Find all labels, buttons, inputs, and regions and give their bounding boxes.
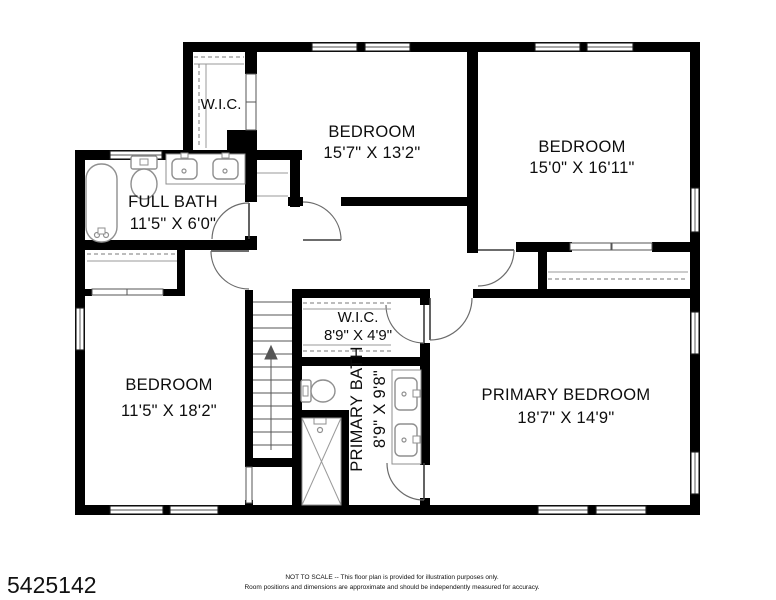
shower (302, 418, 341, 505)
room-label-bedroom-top: BEDROOM (328, 123, 415, 141)
staircase (253, 302, 292, 450)
room-label-full-bath: FULL BATH (128, 193, 218, 211)
floor-plan-canvas: W.I.C. BEDROOM 15'7" X 13'2" BEDROOM 15'… (0, 0, 776, 600)
floor-plan-page: W.I.C. BEDROOM 15'7" X 13'2" BEDROOM 15'… (0, 0, 776, 600)
bifold-door-panel (570, 243, 611, 250)
sliding-door-panel (246, 74, 256, 102)
disclaimer-line-1: NOT TO SCALE -- This floor plan is provi… (285, 574, 498, 581)
room-dims-primary-bath: 8'9" X 9'8" (371, 370, 389, 448)
bedroom-left-door (211, 251, 249, 289)
room-label-primary-bath: PRIMARY BATH (348, 346, 366, 472)
primary-bath-door (387, 463, 424, 500)
room-label-bedroom-right: BEDROOM (538, 138, 625, 156)
room-dims-bedroom-right: 15'0" X 16'11" (529, 159, 634, 177)
bedroom-right-door (478, 250, 514, 286)
room-label-primary-bedroom: PRIMARY BEDROOM (482, 386, 651, 404)
room-label-wic-upper: W.I.C. (201, 96, 242, 113)
double-sink-vanity (392, 370, 421, 464)
sliding-door-panel (92, 289, 127, 295)
bedroom-top-door (303, 202, 341, 240)
room-dims-primary-bedroom: 18'7" X 14'9" (517, 409, 614, 427)
sliding-door-panel (127, 289, 163, 295)
room-label-wic-primary: W.I.C. (338, 309, 379, 326)
room-label-bedroom-left: BEDROOM (125, 376, 212, 394)
storage-door-panel (246, 467, 252, 503)
room-dims-wic-primary: 8'9" X 4'9" (324, 327, 392, 344)
toilet (301, 380, 335, 402)
stair-direction-arrow-icon (265, 346, 277, 450)
room-dims-bedroom-left: 11'5" X 18'2" (121, 402, 217, 420)
listing-id: 5425142 (7, 572, 97, 598)
room-dims-bedroom-top: 15'7" X 13'2" (323, 144, 420, 162)
bifold-door-panel (612, 243, 652, 250)
footer: NOT TO SCALE -- This floor plan is provi… (7, 572, 540, 598)
room-dims-full-bath: 11'5" X 6'0" (130, 215, 216, 233)
sliding-door-panel (246, 102, 256, 130)
double-sink-vanity (166, 153, 245, 184)
bathtub (86, 164, 117, 242)
primary-bedroom-door (430, 298, 472, 340)
disclaimer-line-2: Room positions and dimensions are approx… (244, 584, 539, 591)
